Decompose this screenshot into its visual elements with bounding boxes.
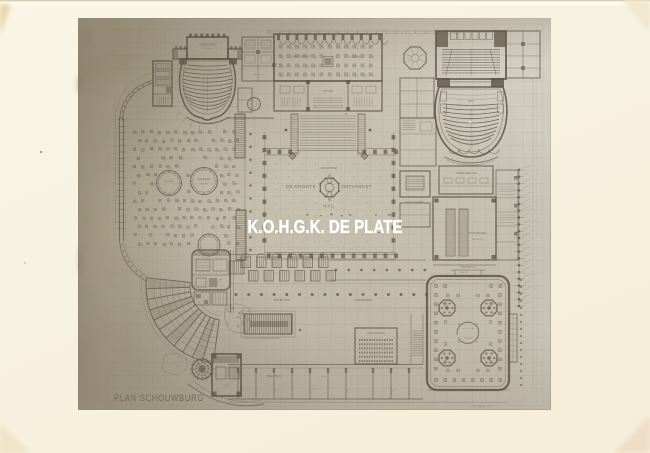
svg-text:K.O.H.G.K. DE PLATE: K.O.H.G.K. DE PLATE [248,216,403,237]
